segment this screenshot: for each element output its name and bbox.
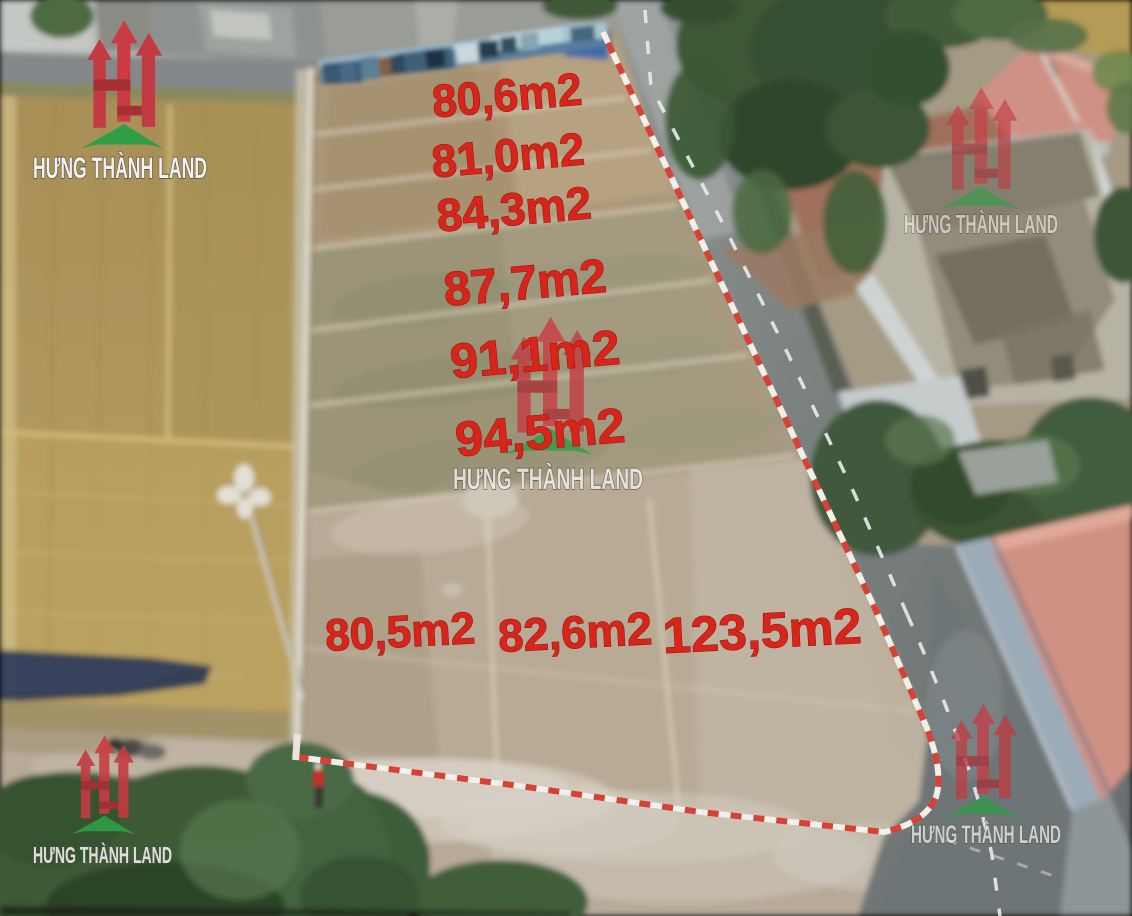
- svg-text:HƯNG THÀNH LAND: HƯNG THÀNH LAND: [453, 462, 643, 496]
- svg-text:HƯNG THÀNH LAND: HƯNG THÀNH LAND: [911, 820, 1061, 849]
- svg-text:82,6m2: 82,6m2: [497, 602, 654, 662]
- svg-text:80,5m2: 80,5m2: [324, 602, 476, 661]
- svg-text:HƯNG THÀNH LAND: HƯNG THÀNH LAND: [33, 151, 207, 185]
- svg-text:123,5m2: 123,5m2: [661, 598, 863, 664]
- svg-text:HƯNG THÀNH LAND: HƯNG THÀNH LAND: [904, 209, 1058, 239]
- svg-text:HƯNG THÀNH LAND: HƯNG THÀNH LAND: [33, 841, 172, 868]
